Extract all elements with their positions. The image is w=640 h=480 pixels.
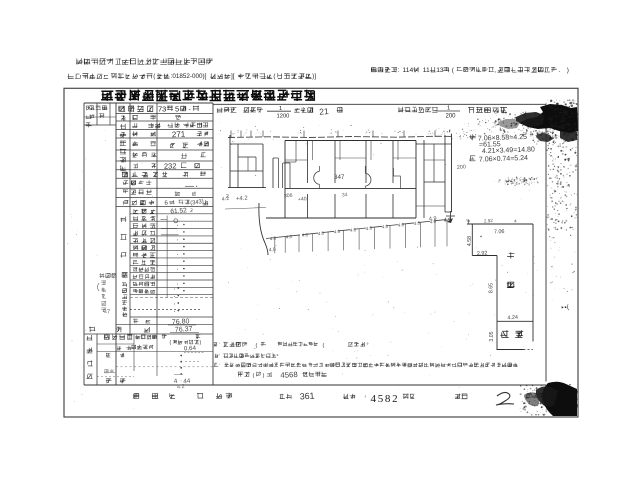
svg-text:+4.2: +4.2 (236, 196, 249, 203)
svg-text:21: 21 (319, 106, 330, 117)
svg-text:): ) (263, 373, 265, 379)
svg-text:306: 306 (284, 193, 293, 200)
svg-text:1200: 1200 (277, 113, 290, 119)
svg-text:%: % (466, 218, 471, 224)
svg-text:+40: +40 (298, 196, 307, 203)
svg-text:)]: )] (312, 73, 316, 80)
svg-text:4.0: 4.0 (350, 227, 357, 233)
svg-text:): ) (567, 67, 569, 74)
svg-text::01852-000)[: :01852-000)[ (171, 73, 207, 80)
svg-text:=7: =7 (103, 309, 110, 316)
svg-text:13: 13 (436, 67, 444, 74)
svg-text:4.58: 4.58 (467, 236, 473, 246)
svg-text:-: - (189, 106, 191, 113)
svg-text:4.0: 4.0 (398, 222, 405, 228)
svg-text:73: 73 (158, 105, 166, 114)
svg-text:4.0: 4.0 (286, 234, 293, 240)
svg-text:0.64: 0.64 (184, 345, 197, 353)
svg-text:°: ° (367, 343, 369, 349)
svg-text:34: 34 (342, 192, 348, 198)
svg-text:°: ° (277, 354, 279, 360)
svg-text:2: 2 (226, 194, 229, 200)
svg-text:8.65: 8.65 (489, 283, 495, 293)
svg-text:(: ( (256, 343, 258, 349)
svg-text:(: ( (323, 343, 325, 349)
svg-text:(: ( (170, 340, 172, 346)
svg-text:11: 11 (423, 67, 430, 74)
svg-text:4.24: 4.24 (507, 315, 518, 321)
svg-text::: : (398, 67, 400, 74)
svg-text:4582: 4582 (371, 393, 400, 405)
svg-text:7.06: 7.06 (494, 229, 505, 235)
svg-text:4.0: 4.0 (382, 224, 389, 230)
svg-text:4568: 4568 (280, 370, 298, 380)
svg-text:271: 271 (172, 129, 186, 139)
svg-text:200: 200 (457, 164, 466, 171)
svg-text:4.0: 4.0 (366, 225, 373, 231)
svg-text:4.2: 4.2 (177, 384, 185, 391)
svg-text:(: ( (253, 373, 255, 379)
svg-text:1: 1 (279, 106, 282, 112)
svg-text:.: . (559, 67, 561, 74)
svg-text:›: › (365, 394, 367, 400)
svg-text:4.0: 4.0 (302, 232, 309, 238)
svg-text:4.0: 4.0 (414, 220, 421, 226)
svg-text:232: 232 (164, 161, 177, 170)
svg-text:200: 200 (446, 114, 457, 120)
svg-text:347: 347 (334, 174, 345, 181)
svg-text:,: , (494, 67, 496, 74)
svg-text:361: 361 (299, 390, 314, 401)
svg-text:4.0: 4.0 (318, 231, 325, 237)
svg-text:61.52: 61.52 (170, 207, 187, 215)
svg-text:4.0: 4.0 (430, 219, 437, 225)
svg-text:2.92: 2.92 (484, 218, 494, 224)
svg-text:][: ][ (231, 73, 235, 80)
svg-text:4: 4 (514, 219, 517, 225)
svg-text:5: 5 (175, 105, 179, 114)
svg-text:3.05: 3.05 (489, 331, 495, 341)
svg-text:): ) (200, 340, 202, 346)
svg-text:4.0: 4.0 (334, 229, 341, 235)
svg-text:1: 1 (447, 106, 450, 112)
svg-text:4.0: 4.0 (270, 236, 277, 242)
svg-text:4.0: 4.0 (269, 247, 277, 254)
svg-text:2.92: 2.92 (477, 250, 488, 257)
svg-text:114: 114 (403, 67, 414, 74)
